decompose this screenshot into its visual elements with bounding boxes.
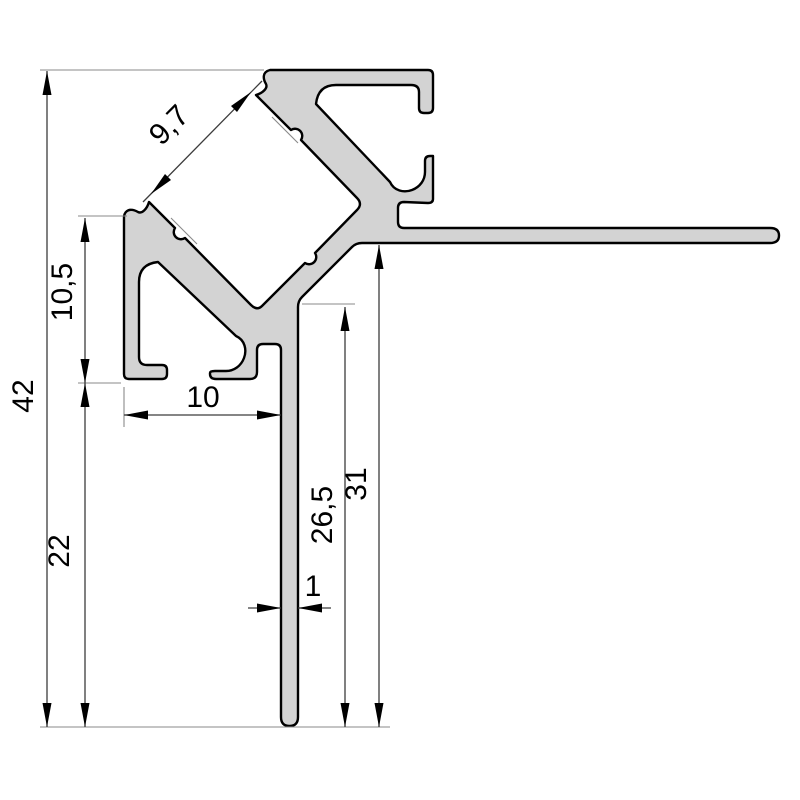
arrowhead-down xyxy=(43,703,52,727)
dimension-foot-width: 10 xyxy=(124,381,281,420)
dimension-label-flange-underside-height: 31 xyxy=(340,467,373,500)
arrowhead-up xyxy=(375,245,384,269)
dimension-label-channel-opening: 9,7 xyxy=(143,99,196,152)
dimension-label-arm-depth: 10,5 xyxy=(46,263,79,321)
arrowhead-up-right xyxy=(231,92,251,112)
arrowhead-down xyxy=(341,703,350,727)
arrowhead-up xyxy=(81,383,90,407)
arrowhead-left xyxy=(124,411,148,420)
arrowhead-up xyxy=(81,218,90,242)
dimension-label-wall-thickness: 1 xyxy=(305,570,322,603)
profile-cross-section-drawing: 42 10,5 22 10 1 xyxy=(0,0,800,800)
arrowhead-right xyxy=(257,604,281,613)
arrowhead-right xyxy=(257,411,281,420)
dimension-overall-height: 42 xyxy=(7,71,52,727)
dimension-lower-leg-span: 22 xyxy=(43,383,90,727)
dimension-label-lower-leg-span: 22 xyxy=(43,534,76,567)
dimension-leg-clear-height: 26,5 xyxy=(306,307,350,727)
arrowhead-up xyxy=(43,71,52,95)
dimension-label-leg-clear-height: 26,5 xyxy=(306,486,339,544)
arrowhead-down xyxy=(375,703,384,727)
arrowhead-down xyxy=(81,703,90,727)
arrowhead-left xyxy=(298,604,322,613)
arrowhead-down xyxy=(81,359,90,383)
technical-drawing-page: 42 10,5 22 10 1 xyxy=(0,0,800,800)
dimension-channel-opening: 9,7 xyxy=(143,81,262,202)
dimension-label-foot-width: 10 xyxy=(186,381,219,414)
arrowhead-up xyxy=(341,307,350,331)
profile-cross-section xyxy=(124,70,779,726)
dimension-label-overall-height: 42 xyxy=(7,379,40,412)
arrowhead-down-left xyxy=(151,174,171,194)
dimension-arm-depth: 10,5 xyxy=(46,218,90,727)
